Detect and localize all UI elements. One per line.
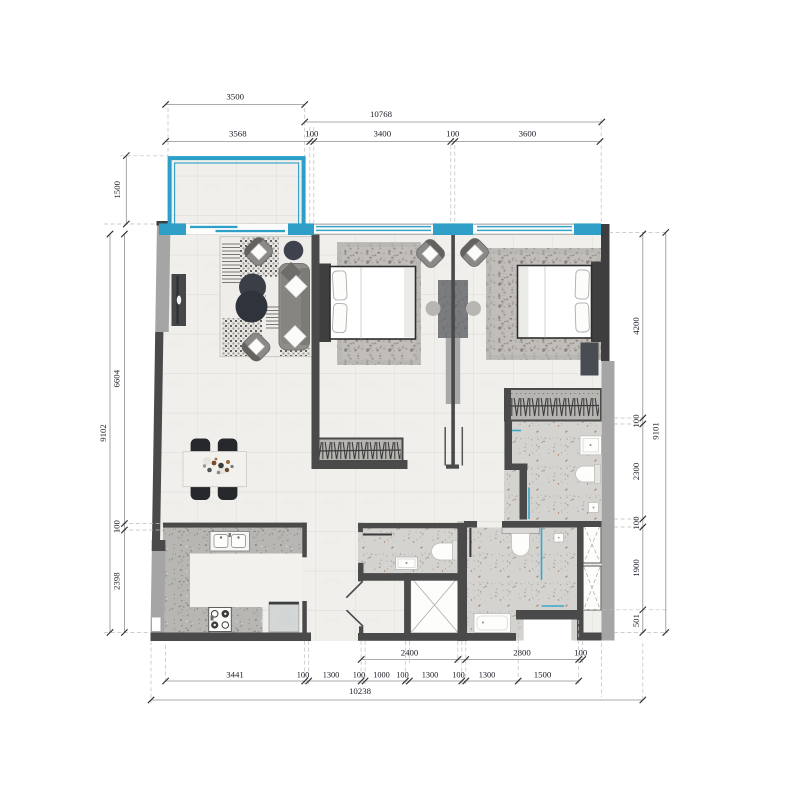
svg-text:100: 100 — [112, 520, 122, 534]
svg-text:3441: 3441 — [226, 670, 244, 680]
svg-text:10238: 10238 — [349, 686, 372, 696]
svg-text:1500: 1500 — [534, 670, 552, 680]
svg-text:100: 100 — [574, 648, 588, 658]
svg-text:100: 100 — [631, 414, 641, 428]
svg-text:2800: 2800 — [513, 648, 531, 658]
svg-text:3400: 3400 — [374, 129, 392, 139]
svg-text:1900: 1900 — [631, 559, 641, 577]
svg-text:2398: 2398 — [112, 572, 122, 590]
svg-text:100: 100 — [631, 516, 641, 530]
svg-text:100: 100 — [305, 129, 319, 139]
svg-text:100: 100 — [297, 671, 309, 680]
svg-text:9102: 9102 — [98, 424, 108, 442]
svg-text:2300: 2300 — [631, 462, 641, 480]
svg-text:9101: 9101 — [651, 422, 661, 440]
svg-text:100: 100 — [396, 671, 408, 680]
svg-text:2400: 2400 — [401, 648, 419, 658]
svg-text:100: 100 — [353, 671, 365, 680]
svg-text:100: 100 — [446, 129, 460, 139]
svg-text:4200: 4200 — [631, 317, 641, 335]
svg-text:10768: 10768 — [370, 109, 393, 119]
svg-text:1300: 1300 — [422, 671, 439, 680]
svg-text:501: 501 — [631, 614, 641, 627]
svg-text:100: 100 — [452, 671, 464, 680]
svg-text:1300: 1300 — [323, 671, 340, 680]
svg-text:1500: 1500 — [112, 180, 122, 198]
svg-text:1300: 1300 — [479, 671, 496, 680]
svg-text:3500: 3500 — [226, 92, 244, 102]
svg-text:6604: 6604 — [112, 369, 122, 387]
svg-text:3568: 3568 — [229, 129, 247, 139]
svg-text:1000: 1000 — [373, 671, 390, 680]
svg-text:3600: 3600 — [519, 129, 537, 139]
